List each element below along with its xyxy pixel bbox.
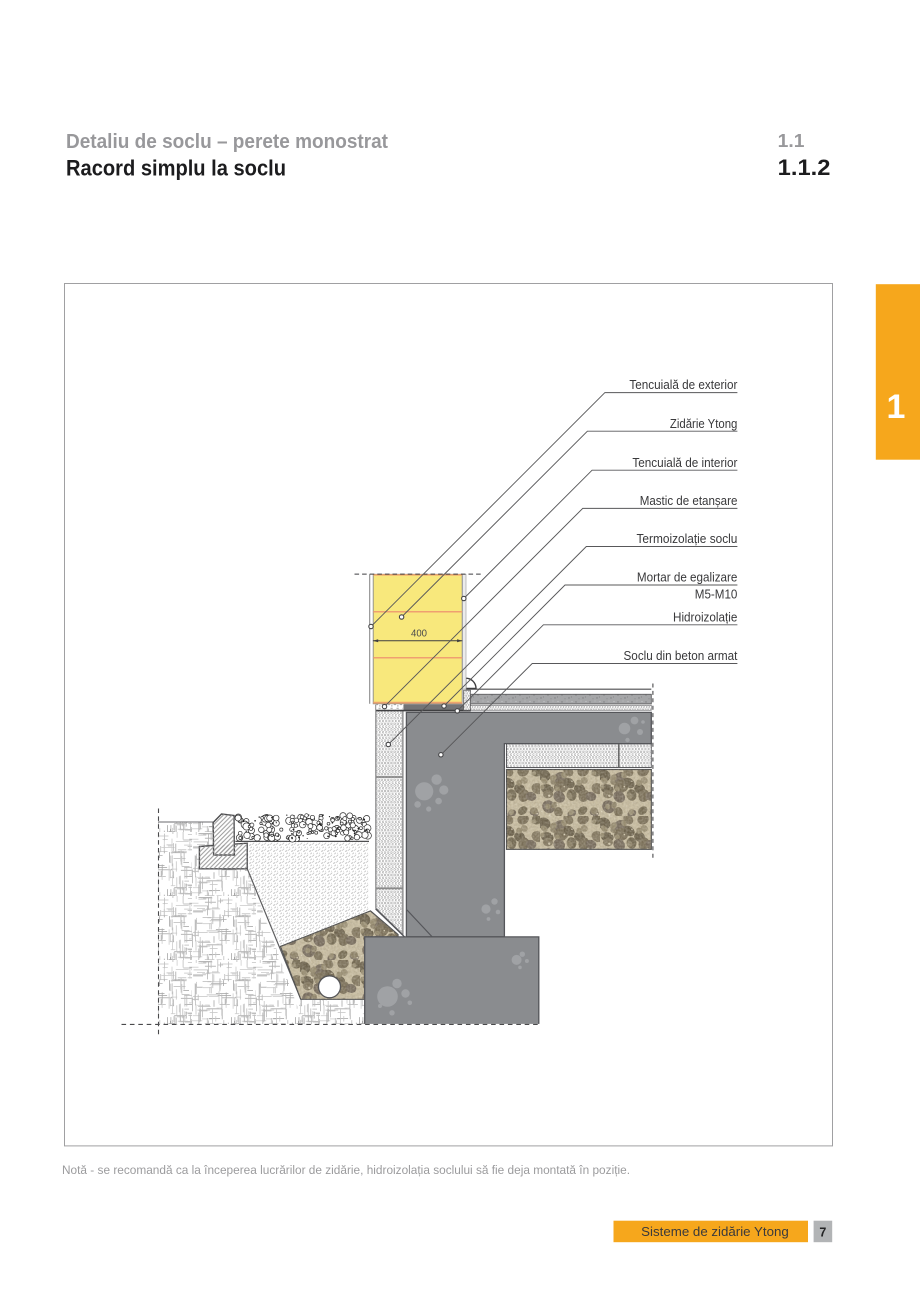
svg-text:Tencuială de exterior: Tencuială de exterior <box>629 377 738 392</box>
svg-text:Soclu din beton armat: Soclu din beton armat <box>624 648 738 663</box>
svg-text:Mastic de etanșare: Mastic de etanșare <box>640 493 738 508</box>
svg-text:1.1: 1.1 <box>778 131 805 151</box>
svg-text:400: 400 <box>411 627 427 639</box>
svg-text:1.1.2: 1.1.2 <box>778 155 831 180</box>
svg-text:M5-M10: M5-M10 <box>695 587 738 602</box>
svg-text:1: 1 <box>887 388 906 426</box>
svg-text:Hidroizolație: Hidroizolație <box>673 609 737 624</box>
svg-text:Detaliu de soclu – perete mono: Detaliu de soclu – perete monostrat <box>66 131 388 153</box>
svg-text:Notă - se recomandă ca la înce: Notă - se recomandă ca la începerea lucr… <box>62 1163 630 1177</box>
svg-text:Mortar de egalizare: Mortar de egalizare <box>637 570 738 585</box>
svg-text:Racord simplu la soclu: Racord simplu la soclu <box>66 156 286 181</box>
svg-text:Tencuială de interior: Tencuială de interior <box>632 455 738 470</box>
svg-text:Termoizolație soclu: Termoizolație soclu <box>637 531 738 546</box>
svg-text:Sisteme de zidărie Ytong: Sisteme de zidărie Ytong <box>641 1225 789 1239</box>
svg-text:Zidărie Ytong: Zidărie Ytong <box>670 416 738 431</box>
svg-text:7: 7 <box>819 1225 826 1239</box>
